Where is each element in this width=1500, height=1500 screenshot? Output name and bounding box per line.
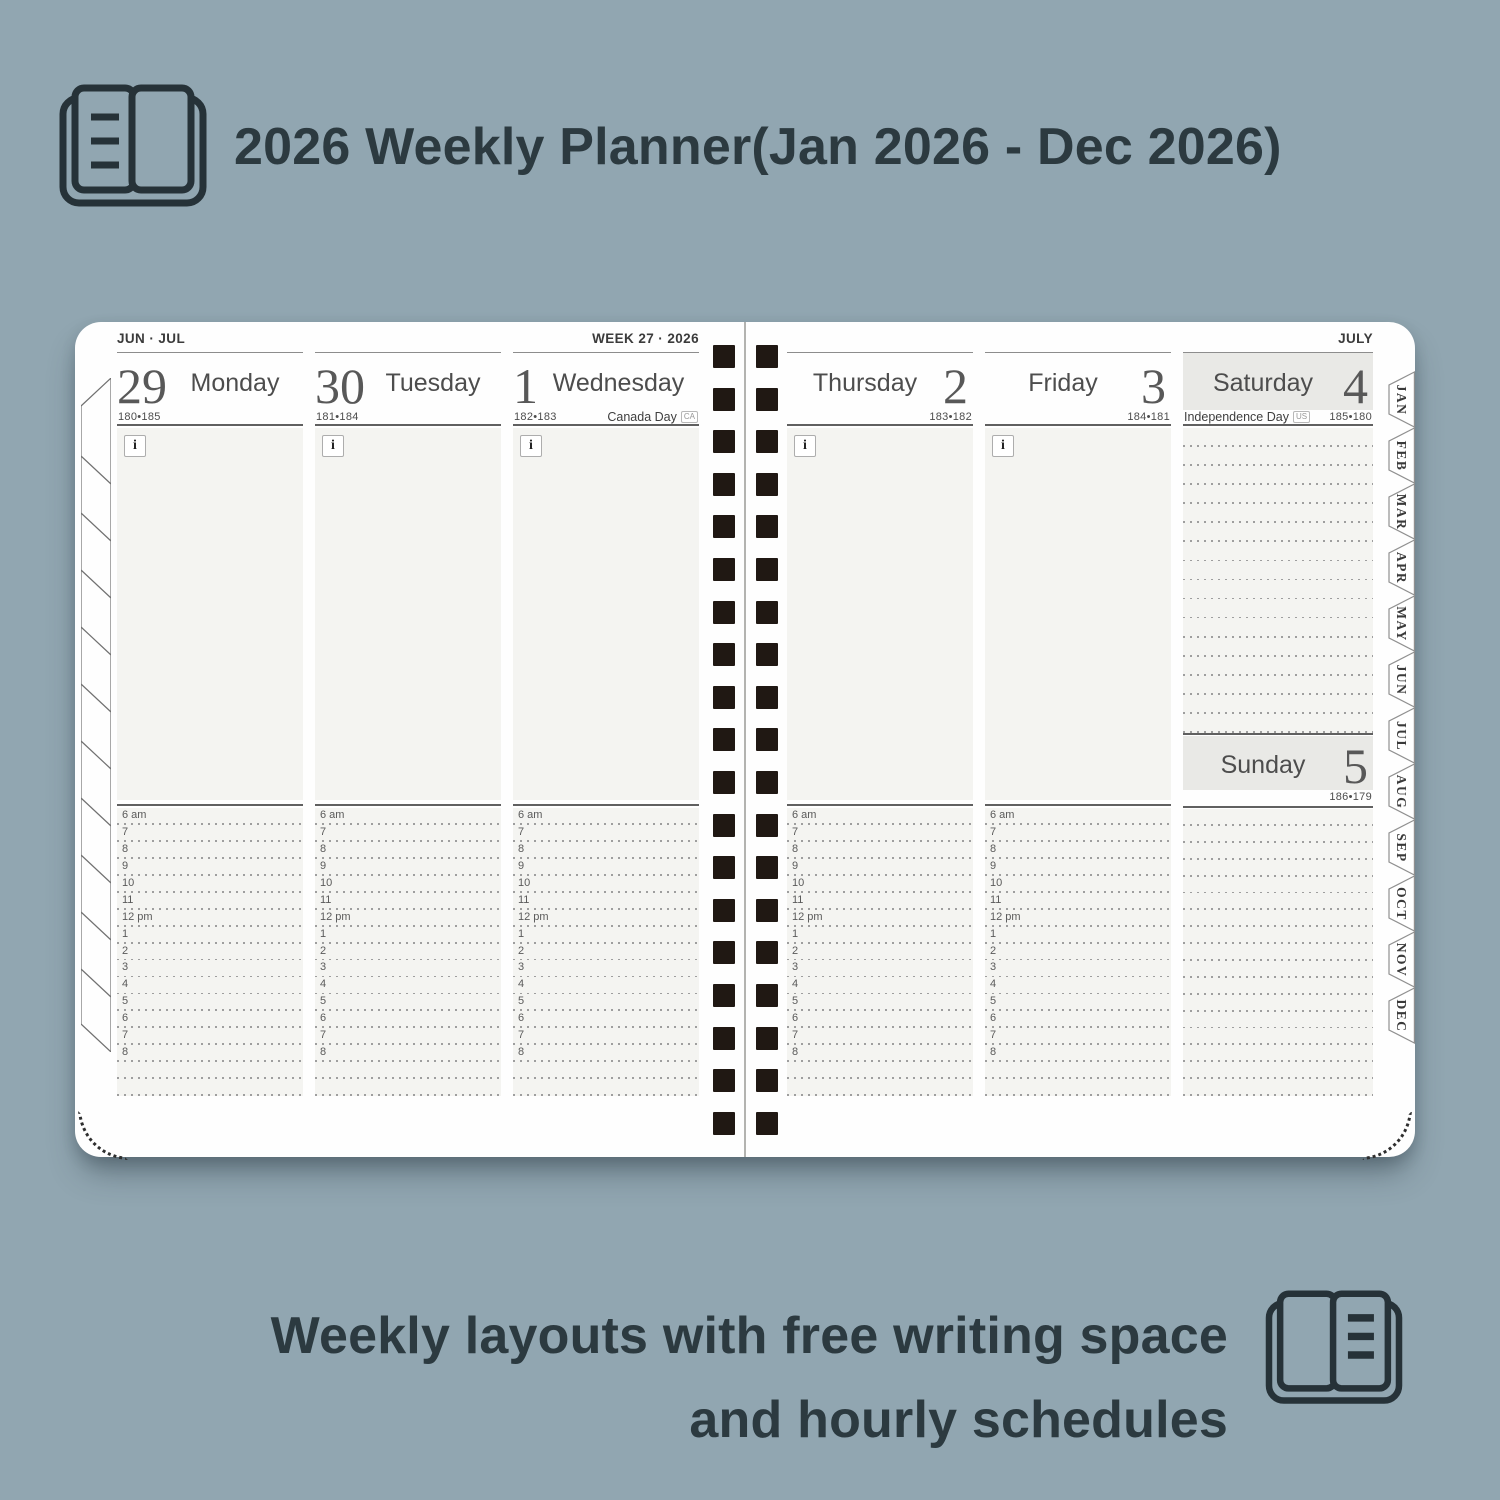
schedule-row <box>1183 466 1373 485</box>
binding-square <box>713 899 735 922</box>
schedule-row: 7 <box>513 1028 699 1045</box>
day-column-tuesday: 30Tuesday181•184i6 am789101112 pm1234567… <box>315 322 501 1157</box>
day-name: Wednesday <box>538 369 699 398</box>
weekend-lower-area <box>1183 809 1373 1096</box>
schedule-row: 6 <box>117 1011 303 1028</box>
schedule-row: 7 <box>513 825 699 842</box>
sunday-header: Sunday5 <box>1183 736 1373 790</box>
hour-label: 7 <box>990 826 996 839</box>
info-icon: i <box>794 435 816 457</box>
meta-rule <box>315 424 501 426</box>
schedule-row: 2 <box>787 944 973 961</box>
hour-label: 2 <box>320 945 326 958</box>
hour-label: 3 <box>792 961 798 974</box>
hour-label: 1 <box>792 928 798 941</box>
hatch-line <box>81 1024 111 1052</box>
hour-label: 10 <box>122 877 134 890</box>
schedule-row: 11 <box>985 893 1171 910</box>
hour-label: 7 <box>792 826 798 839</box>
schedule-row: 6 am <box>513 808 699 825</box>
day-meta-row: 182•183Canada DayCA <box>514 410 698 424</box>
hour-label: 6 <box>518 1012 524 1025</box>
hour-label: 4 <box>122 978 128 991</box>
hour-label: 9 <box>990 860 996 873</box>
hatch-line <box>81 513 111 541</box>
schedule-row <box>1183 961 1373 978</box>
binding-square <box>713 388 735 411</box>
schedule-row <box>1183 1028 1373 1045</box>
hour-label: 1 <box>990 928 996 941</box>
hatch-line <box>81 378 111 406</box>
binding-square <box>713 984 735 1007</box>
schedule-row: 8 <box>787 1045 973 1062</box>
binding-square <box>713 856 735 879</box>
schedule-row: 12 pm <box>117 910 303 927</box>
hour-label: 11 <box>122 894 133 907</box>
binding-square <box>756 771 778 794</box>
schedule-row: 8 <box>513 1045 699 1062</box>
hour-label: 8 <box>990 1046 996 1059</box>
hatch-line <box>81 741 111 769</box>
schedule-row: 5 <box>117 994 303 1011</box>
schedule-row: 7 <box>117 1028 303 1045</box>
hour-label: 6 am <box>990 809 1014 822</box>
day-meta-row: Independence DayUS185•180 <box>1184 410 1372 424</box>
hour-label: 11 <box>518 894 529 907</box>
schedule-row: 11 <box>513 893 699 910</box>
hour-label: 10 <box>320 877 332 890</box>
hourly-schedule: 6 am789101112 pm12345678 <box>513 808 699 1096</box>
hour-label: 2 <box>518 945 524 958</box>
hour-label: 9 <box>320 860 326 873</box>
day-number: 2 <box>943 363 968 411</box>
hatch-line <box>81 570 111 598</box>
day-column-thursday: Thursday2183•182i6 am789101112 pm1234567… <box>787 322 973 1157</box>
schedule-row: 7 <box>315 1028 501 1045</box>
binding-square <box>713 515 735 538</box>
schedule-row: 12 pm <box>985 910 1171 927</box>
binding-square <box>756 643 778 666</box>
hour-label: 9 <box>792 860 798 873</box>
schedule-row: 11 <box>315 893 501 910</box>
day-number: 29 <box>117 363 167 411</box>
schedule-row <box>1183 523 1373 542</box>
schedule-row <box>985 1079 1171 1096</box>
hour-label: 10 <box>990 877 1002 890</box>
footer-line2: and hourly schedules <box>271 1378 1228 1462</box>
day-name: Thursday <box>787 369 943 398</box>
hatch-line <box>81 684 111 712</box>
binding-square <box>713 771 735 794</box>
schedule-row: 12 pm <box>513 910 699 927</box>
free-writing-area: i <box>315 428 501 800</box>
binding-square <box>756 814 778 837</box>
hour-label: 6 am <box>518 809 542 822</box>
day-of-year-count: 181•184 <box>316 411 359 423</box>
hourly-schedule: 6 am789101112 pm12345678 <box>117 808 303 1096</box>
meta-rule <box>1183 424 1373 426</box>
saturday-header: Saturday4 <box>1183 353 1373 410</box>
day-header: Thursday2 <box>787 353 973 410</box>
schedule-row: 6 am <box>985 808 1171 825</box>
schedule-row <box>1183 843 1373 860</box>
binding-square <box>756 856 778 879</box>
hour-label: 8 <box>122 843 128 856</box>
schedule-row: 6 am <box>117 808 303 825</box>
hour-label: 7 <box>122 1029 128 1042</box>
schedule-row <box>1183 910 1373 927</box>
schedule-row: 7 <box>117 825 303 842</box>
hour-label: 2 <box>122 945 128 958</box>
day-column-weekend: Saturday4Independence DayUS185•180Sunday… <box>1183 322 1373 1157</box>
schedule-row <box>117 1079 303 1096</box>
day-name: Saturday <box>1183 369 1343 398</box>
schedule-row <box>1183 809 1373 826</box>
binding-square <box>713 430 735 453</box>
free-writing-area: i <box>117 428 303 800</box>
schedule-row <box>787 1079 973 1096</box>
hour-label: 5 <box>990 995 996 1008</box>
schedule-row: 5 <box>985 994 1171 1011</box>
schedule-row: 8 <box>315 1045 501 1062</box>
binding-square <box>713 558 735 581</box>
binding-square <box>713 473 735 496</box>
planner-spread: JUN · JUL WEEK 27 · 2026 JULY JANFEBMARA… <box>75 322 1415 1157</box>
meta-rule <box>787 424 973 426</box>
schedule-row: 12 pm <box>315 910 501 927</box>
schedule-row <box>1183 944 1373 961</box>
holiday-name: Canada Day <box>607 410 677 424</box>
binding-square <box>713 345 735 368</box>
footer-line1: Weekly layouts with free writing space <box>271 1294 1228 1378</box>
schedule-row: 3 <box>787 960 973 977</box>
sunday-top-rule <box>1183 733 1373 735</box>
hours-rule <box>985 804 1171 806</box>
schedule-row: 2 <box>513 944 699 961</box>
header: 2026 Weekly Planner(Jan 2026 - Dec 2026) <box>58 84 1282 210</box>
schedule-row <box>315 1062 501 1079</box>
day-number: 5 <box>1343 743 1368 791</box>
month-tab-label: JUN <box>1394 665 1409 696</box>
hour-label: 10 <box>518 877 530 890</box>
hour-label: 11 <box>792 894 803 907</box>
schedule-row <box>1183 1079 1373 1096</box>
hourly-schedule: 6 am789101112 pm12345678 <box>787 808 973 1096</box>
month-tab-label: SEP <box>1394 833 1409 862</box>
hour-label: 3 <box>320 961 326 974</box>
schedule-row <box>1183 599 1373 618</box>
schedule-row: 7 <box>315 825 501 842</box>
product-title: 2026 Weekly Planner(Jan 2026 - Dec 2026) <box>234 117 1282 177</box>
schedule-row: 6 <box>787 1011 973 1028</box>
hour-label: 5 <box>122 995 128 1008</box>
holiday-name: Independence Day <box>1184 410 1289 424</box>
info-icon: i <box>520 435 542 457</box>
schedule-row: 6 <box>513 1011 699 1028</box>
hour-label: 5 <box>792 995 798 1008</box>
schedule-row: 6 <box>985 1011 1171 1028</box>
schedule-row <box>787 1062 973 1079</box>
hatch-line <box>81 456 111 484</box>
binding-square <box>713 941 735 964</box>
info-icon: i <box>124 435 146 457</box>
hour-label: 7 <box>990 1029 996 1042</box>
hourly-schedule: 6 am789101112 pm12345678 <box>315 808 501 1096</box>
hours-rule <box>787 804 973 806</box>
holiday-label: Canada DayCA <box>607 410 698 424</box>
binding-square <box>756 473 778 496</box>
day-column-friday: Friday3184•181i6 am789101112 pm12345678 <box>985 322 1171 1157</box>
open-book-icon <box>1264 1290 1404 1407</box>
schedule-row <box>513 1062 699 1079</box>
meta-rule <box>117 424 303 426</box>
schedule-row: 3 <box>315 960 501 977</box>
schedule-row: 8 <box>117 1045 303 1062</box>
hour-label: 12 pm <box>990 911 1021 924</box>
hour-label: 7 <box>320 1029 326 1042</box>
hour-label: 5 <box>320 995 326 1008</box>
month-tab-label: MAY <box>1394 606 1409 642</box>
schedule-row: 9 <box>985 859 1171 876</box>
day-column-wednesday: 1Wednesday182•183Canada DayCAi6 am789101… <box>513 322 699 1157</box>
schedule-row <box>315 1079 501 1096</box>
schedule-row <box>1183 1062 1373 1079</box>
schedule-row <box>1183 714 1373 733</box>
binding-square <box>756 430 778 453</box>
schedule-row <box>1183 504 1373 523</box>
schedule-row <box>1183 428 1373 447</box>
free-writing-area: i <box>787 428 973 800</box>
schedule-row: 6 am <box>787 808 973 825</box>
schedule-row: 7 <box>985 825 1171 842</box>
schedule-row: 1 <box>513 927 699 944</box>
hour-label: 1 <box>122 928 128 941</box>
binding-square <box>756 728 778 751</box>
binding-square <box>756 1027 778 1050</box>
sunday-bottom-rule <box>1183 806 1373 808</box>
schedule-row <box>1183 695 1373 714</box>
schedule-row <box>1183 561 1373 580</box>
day-meta-row: 180•185 <box>118 410 302 424</box>
hourly-schedule: 6 am789101112 pm12345678 <box>985 808 1171 1096</box>
hour-label: 7 <box>518 826 524 839</box>
hour-label: 4 <box>518 978 524 991</box>
schedule-row <box>1183 877 1373 894</box>
day-meta-row: 186•179 <box>1184 790 1372 804</box>
schedule-row: 9 <box>117 859 303 876</box>
schedule-row <box>1183 995 1373 1012</box>
binding-square <box>713 1112 735 1135</box>
schedule-row <box>1183 1045 1373 1062</box>
hour-label: 6 <box>792 1012 798 1025</box>
hatch-line <box>81 627 111 655</box>
schedule-row: 3 <box>513 960 699 977</box>
schedule-row: 10 <box>117 876 303 893</box>
hours-rule <box>315 804 501 806</box>
schedule-row: 4 <box>787 977 973 994</box>
schedule-row: 2 <box>117 944 303 961</box>
free-writing-area: i <box>985 428 1171 800</box>
schedule-row <box>1183 826 1373 843</box>
day-number: 30 <box>315 363 365 411</box>
binding-square <box>756 601 778 624</box>
schedule-row: 12 pm <box>787 910 973 927</box>
schedule-row: 10 <box>315 876 501 893</box>
schedule-row: 9 <box>315 859 501 876</box>
schedule-row: 7 <box>985 1028 1171 1045</box>
schedule-row: 5 <box>787 994 973 1011</box>
day-header: Friday3 <box>985 353 1171 410</box>
schedule-row: 3 <box>985 960 1171 977</box>
schedule-row <box>1183 893 1373 910</box>
binding-square <box>713 601 735 624</box>
schedule-row: 4 <box>985 977 1171 994</box>
month-tab-label: AUG <box>1394 775 1409 810</box>
schedule-row <box>1183 618 1373 637</box>
binding-square <box>756 1112 778 1135</box>
schedule-row: 5 <box>513 994 699 1011</box>
schedule-row: 6 am <box>315 808 501 825</box>
schedule-row: 9 <box>787 859 973 876</box>
hour-label: 12 pm <box>518 911 549 924</box>
binding-square <box>713 1069 735 1092</box>
hour-label: 12 pm <box>122 911 153 924</box>
hour-label: 8 <box>122 1046 128 1059</box>
hour-label: 8 <box>320 1046 326 1059</box>
schedule-row <box>1183 927 1373 944</box>
schedule-row <box>1183 978 1373 995</box>
schedule-row: 8 <box>985 842 1171 859</box>
schedule-row: 10 <box>985 876 1171 893</box>
binding-square <box>756 558 778 581</box>
schedule-row: 8 <box>315 842 501 859</box>
schedule-row: 2 <box>315 944 501 961</box>
month-tab-label: MAR <box>1394 494 1409 531</box>
day-meta-row: 181•184 <box>316 410 500 424</box>
schedule-row: 4 <box>117 977 303 994</box>
page-edge-hatching <box>81 378 111 1052</box>
hatch-line <box>81 855 111 883</box>
hour-label: 7 <box>518 1029 524 1042</box>
hour-label: 1 <box>518 928 524 941</box>
hatch-line <box>81 912 111 940</box>
footer: Weekly layouts with free writing space a… <box>271 1290 1404 1462</box>
schedule-row: 5 <box>315 994 501 1011</box>
day-name: Monday <box>167 369 303 398</box>
schedule-row <box>1183 580 1373 599</box>
day-of-year-count: 184•181 <box>1127 411 1170 423</box>
schedule-row: 11 <box>787 893 973 910</box>
hour-label: 4 <box>990 978 996 991</box>
holiday-badge: CA <box>681 411 698 423</box>
schedule-row <box>1183 447 1373 466</box>
day-number: 4 <box>1343 363 1368 411</box>
binding-square <box>756 515 778 538</box>
day-meta-row: 184•181 <box>986 410 1170 424</box>
hour-label: 2 <box>792 945 798 958</box>
info-icon: i <box>992 435 1014 457</box>
holiday-label: Independence DayUS <box>1184 410 1310 424</box>
schedule-row: 1 <box>315 927 501 944</box>
footer-text: Weekly layouts with free writing space a… <box>271 1294 1228 1462</box>
hour-label: 11 <box>990 894 1001 907</box>
schedule-row: 11 <box>117 893 303 910</box>
day-of-year-count: 182•183 <box>514 411 557 423</box>
schedule-row: 6 <box>315 1011 501 1028</box>
schedule-row <box>1183 638 1373 657</box>
hour-label: 3 <box>990 961 996 974</box>
day-header: 1Wednesday <box>513 353 699 410</box>
schedule-row <box>1183 860 1373 877</box>
hour-label: 6 <box>320 1012 326 1025</box>
month-tab-label: APR <box>1394 552 1409 584</box>
day-of-year-count: 180•185 <box>118 411 161 423</box>
month-tab-label: DEC <box>1394 999 1409 1032</box>
day-header: 29Monday <box>117 353 303 410</box>
hour-label: 12 pm <box>320 911 351 924</box>
hour-label: 8 <box>518 1046 524 1059</box>
day-name: Friday <box>985 369 1141 398</box>
month-tab-label: JUL <box>1394 721 1409 751</box>
binding-square <box>756 1069 778 1092</box>
schedule-row <box>1183 657 1373 676</box>
schedule-row: 1 <box>117 927 303 944</box>
binding-square <box>756 984 778 1007</box>
day-of-year-count: 186•179 <box>1329 791 1372 803</box>
info-icon: i <box>322 435 344 457</box>
schedule-row: 7 <box>787 825 973 842</box>
hours-rule <box>513 804 699 806</box>
day-meta-row: 183•182 <box>788 410 972 424</box>
day-column-monday: 29Monday180•185i6 am789101112 pm12345678 <box>117 322 303 1157</box>
binding-square <box>756 686 778 709</box>
schedule-row <box>1183 676 1373 695</box>
hour-label: 7 <box>320 826 326 839</box>
schedule-row <box>1183 1012 1373 1029</box>
hour-label: 6 <box>122 1012 128 1025</box>
product-image: 2026 Weekly Planner(Jan 2026 - Dec 2026)… <box>0 0 1500 1500</box>
hour-label: 3 <box>518 961 524 974</box>
holiday-badge: US <box>1293 411 1310 423</box>
hour-label: 8 <box>792 1046 798 1059</box>
month-tabs: JANFEBMARAPRMAYJUNJULAUGSEPOCTNOVDEC <box>1378 371 1415 1047</box>
schedule-row: 10 <box>513 876 699 893</box>
hour-label: 11 <box>320 894 331 907</box>
free-writing-area: i <box>513 428 699 800</box>
hours-rule <box>117 804 303 806</box>
hour-label: 7 <box>792 1029 798 1042</box>
day-number: 1 <box>513 363 538 411</box>
schedule-row: 8 <box>985 1045 1171 1062</box>
day-name: Tuesday <box>365 369 501 398</box>
binding-square <box>713 686 735 709</box>
saturday-free-area <box>1183 428 1373 733</box>
binding-square <box>713 643 735 666</box>
schedule-row <box>1183 542 1373 561</box>
schedule-row: 10 <box>787 876 973 893</box>
hour-label: 9 <box>518 860 524 873</box>
hour-label: 8 <box>792 843 798 856</box>
binding-square <box>713 814 735 837</box>
schedule-row: 2 <box>985 944 1171 961</box>
hour-label: 4 <box>320 978 326 991</box>
day-of-year-count: 185•180 <box>1329 411 1372 423</box>
schedule-row: 1 <box>985 927 1171 944</box>
day-number: 3 <box>1141 363 1166 411</box>
open-book-icon <box>58 84 208 210</box>
month-tab-label: NOV <box>1394 943 1409 978</box>
schedule-row: 1 <box>787 927 973 944</box>
